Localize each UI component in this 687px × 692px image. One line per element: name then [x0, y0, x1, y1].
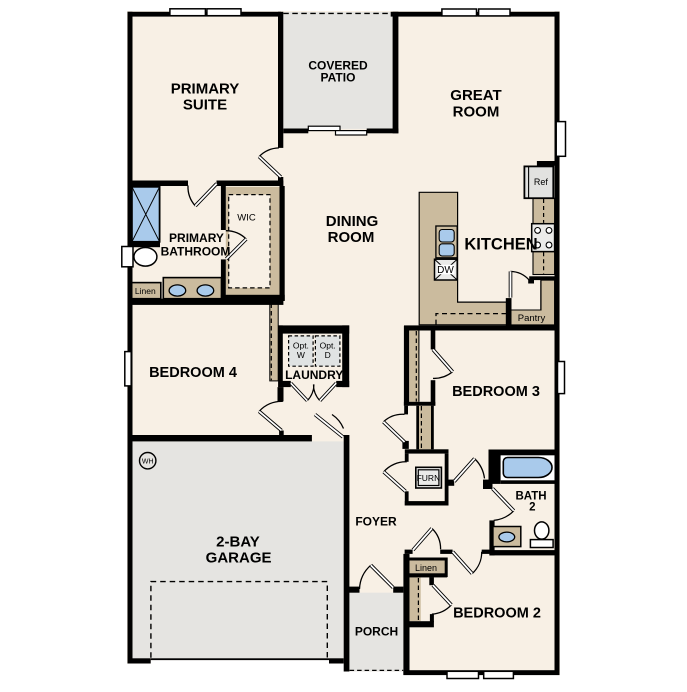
svg-text:PATIO: PATIO — [321, 71, 356, 85]
svg-text:Opt.: Opt. — [320, 341, 336, 351]
svg-text:Linen: Linen — [135, 286, 156, 296]
svg-text:ROOM: ROOM — [453, 104, 500, 121]
svg-text:Linen: Linen — [415, 563, 437, 573]
svg-text:2-BAY: 2-BAY — [216, 533, 260, 550]
svg-text:FURN: FURN — [417, 473, 441, 483]
svg-text:FOYER: FOYER — [355, 515, 397, 529]
svg-text:WIC: WIC — [237, 212, 256, 223]
svg-text:GARAGE: GARAGE — [206, 549, 272, 566]
svg-text:BEDROOM 3: BEDROOM 3 — [452, 384, 540, 400]
svg-text:WH: WH — [142, 458, 154, 465]
svg-text:D: D — [325, 350, 331, 360]
svg-text:ROOM: ROOM — [328, 229, 375, 246]
svg-text:KITCHEN: KITCHEN — [464, 236, 537, 254]
svg-text:Opt.: Opt. — [293, 341, 309, 351]
svg-text:GREAT: GREAT — [450, 87, 501, 104]
svg-text:PORCH: PORCH — [355, 624, 398, 638]
svg-text:Pantry: Pantry — [518, 313, 546, 324]
svg-text:PRIMARY: PRIMARY — [171, 80, 240, 97]
svg-text:BEDROOM 4: BEDROOM 4 — [149, 365, 237, 381]
svg-text:DW: DW — [437, 265, 454, 276]
svg-text:W: W — [297, 350, 305, 360]
svg-text:2: 2 — [529, 502, 535, 514]
svg-text:PRIMARY: PRIMARY — [169, 231, 224, 245]
svg-text:LAUNDRY: LAUNDRY — [285, 368, 343, 382]
svg-text:BEDROOM 2: BEDROOM 2 — [453, 606, 541, 622]
svg-text:BATHROOM: BATHROOM — [161, 244, 231, 258]
svg-text:DINING: DINING — [326, 213, 379, 230]
svg-text:Ref: Ref — [534, 177, 549, 187]
svg-text:SUITE: SUITE — [183, 97, 227, 114]
